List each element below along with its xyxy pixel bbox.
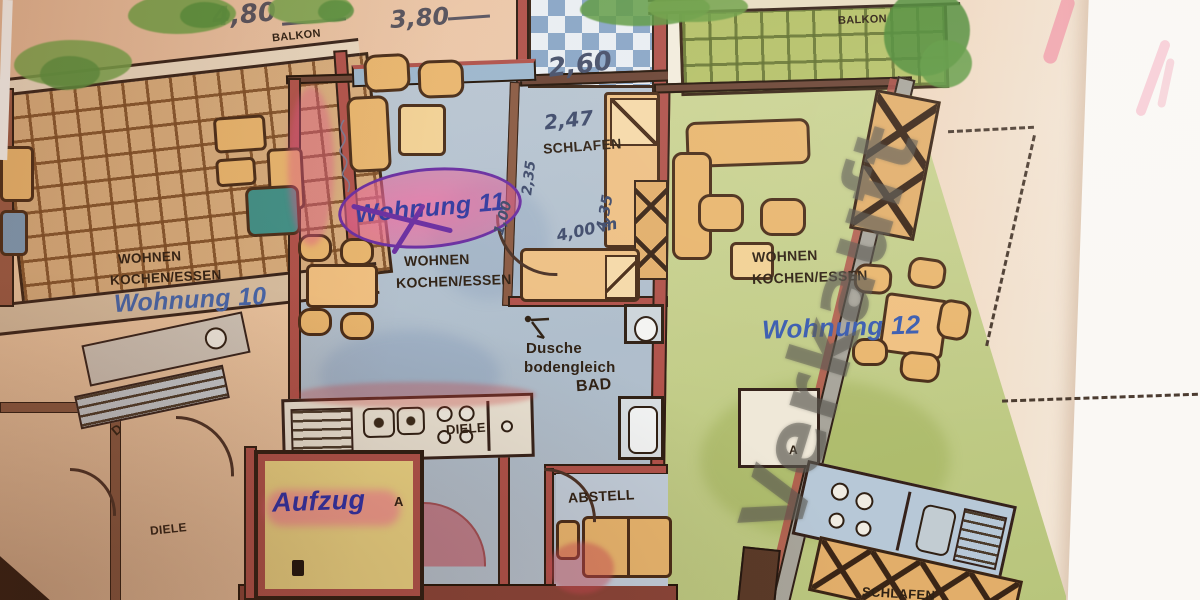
- w10-cabinet-1: [213, 114, 267, 154]
- elevator-label: Aufzug: [271, 484, 365, 518]
- door-label-a-w12: A: [789, 443, 798, 457]
- apartment-12-name: Wohnung 12: [762, 309, 922, 346]
- dim-3-80-line: [448, 15, 490, 21]
- w12-chair-4: [899, 350, 942, 384]
- w11-coffee-table: [398, 104, 446, 156]
- bad-sink: [618, 396, 664, 460]
- w10-edge-blue: [0, 210, 28, 256]
- floor-plan-photo: Aufzug A A Wohnung 11 BALKON BALKON: [0, 0, 1200, 600]
- w11-bed-2-pillow: [605, 255, 637, 299]
- w11-dining-table: [306, 264, 378, 308]
- elevator-door-mark: [292, 560, 304, 576]
- dim-3-80: 3,80: [389, 2, 450, 34]
- w11-kitchen-cabinet: [290, 407, 353, 453]
- abstell-cabinet-small: [556, 520, 580, 560]
- pink-stroke-1: [1042, 0, 1077, 65]
- w11-chair-4: [340, 312, 374, 340]
- w12-bedroom-partial-label: SCHLAFEN: [862, 584, 936, 600]
- w11-chair-3: [298, 308, 332, 336]
- bad-toilet-bowl: [634, 316, 658, 342]
- w11-burner-2: [458, 405, 474, 421]
- w11-armchair-2: [417, 59, 464, 99]
- dashed-line-top: [948, 126, 1034, 133]
- w12-chair-2: [906, 256, 948, 291]
- w11-kitchen-divider: [486, 401, 490, 451]
- w11-burner-1: [436, 406, 452, 422]
- abstell-cabinet: [582, 516, 672, 578]
- w12-armchair-2: [760, 198, 806, 236]
- w12-armchair-1: [698, 194, 744, 232]
- w11-sink-2: [396, 407, 425, 436]
- w10-cabinet-2: [215, 157, 257, 188]
- dashed-line-slant: [985, 135, 1036, 346]
- bad-sink-basin: [628, 406, 658, 454]
- abstell-cabinet-divider: [627, 519, 630, 575]
- bad-toilet: [624, 304, 664, 344]
- dim-2-47: 2,47: [543, 105, 595, 134]
- bad-label: BAD: [575, 376, 612, 396]
- w12-living-label-1: WOHNEN: [752, 247, 818, 265]
- w11-sink-1: [362, 407, 395, 438]
- bath-label-2: bodengleich: [524, 359, 616, 376]
- w11-chair-1: [298, 234, 332, 262]
- paper-edge-right: [1067, 0, 1200, 600]
- w12-bath-niche: A: [738, 388, 820, 468]
- w10-sink: [203, 325, 229, 351]
- w10-sofa-teal: [245, 185, 302, 238]
- w12-door: [737, 546, 781, 600]
- door-label-a-w11: A: [394, 494, 404, 509]
- balkon-right-label: BALKON: [838, 13, 887, 27]
- w11-armchair-1: [363, 53, 411, 93]
- w11-living-label-1: WOHNEN: [404, 251, 470, 269]
- bath-label-1: Dusche: [526, 340, 582, 357]
- w11-kitchen-knob: [501, 420, 513, 432]
- elevator-room: [254, 450, 424, 600]
- plant-10: [920, 40, 972, 88]
- pencil-scribble: [330, 116, 374, 196]
- plant-6: [318, 0, 354, 22]
- diele-label-w11: DIELE: [446, 420, 487, 438]
- corridor-wall: [498, 455, 510, 595]
